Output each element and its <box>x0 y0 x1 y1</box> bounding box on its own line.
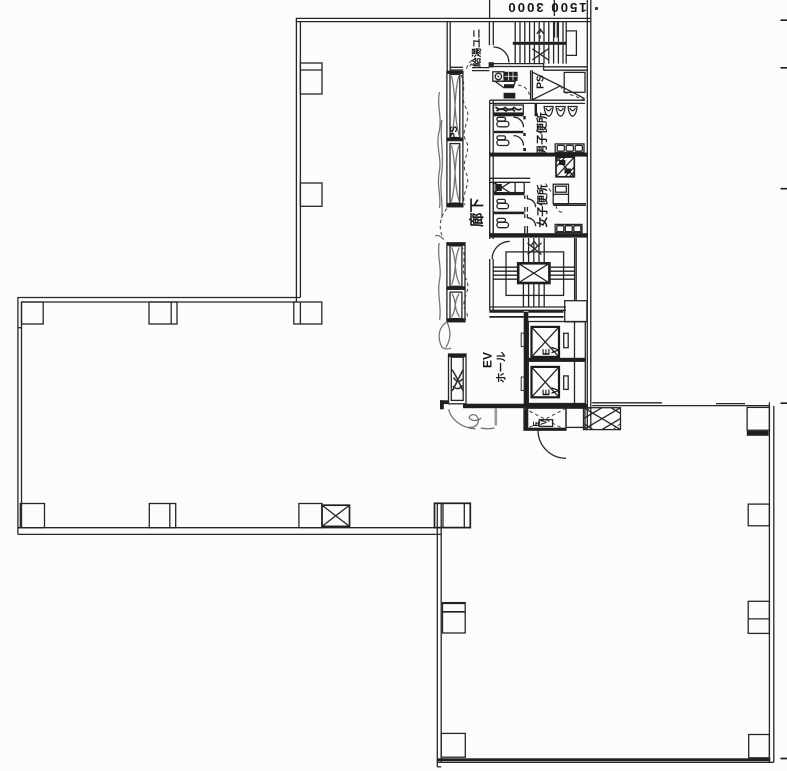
svg-text:女子便所: 女子便所 <box>535 184 549 227</box>
svg-text:PS: PS <box>535 75 547 89</box>
svg-text:男子便所: 男子便所 <box>535 112 549 155</box>
svg-text:1500 3000: 1500 3000 <box>506 0 586 15</box>
svg-text:PS: PS <box>449 125 460 139</box>
svg-text:V: V <box>550 346 562 353</box>
svg-text:給湯ユニ: 給湯ユニ <box>471 29 483 67</box>
svg-text:V: V <box>550 387 562 394</box>
svg-text:V: V <box>540 419 549 425</box>
svg-text:廊下: 廊下 <box>468 198 486 227</box>
svg-text:ホール: ホール <box>496 351 508 383</box>
svg-text:EV: EV <box>481 352 495 368</box>
